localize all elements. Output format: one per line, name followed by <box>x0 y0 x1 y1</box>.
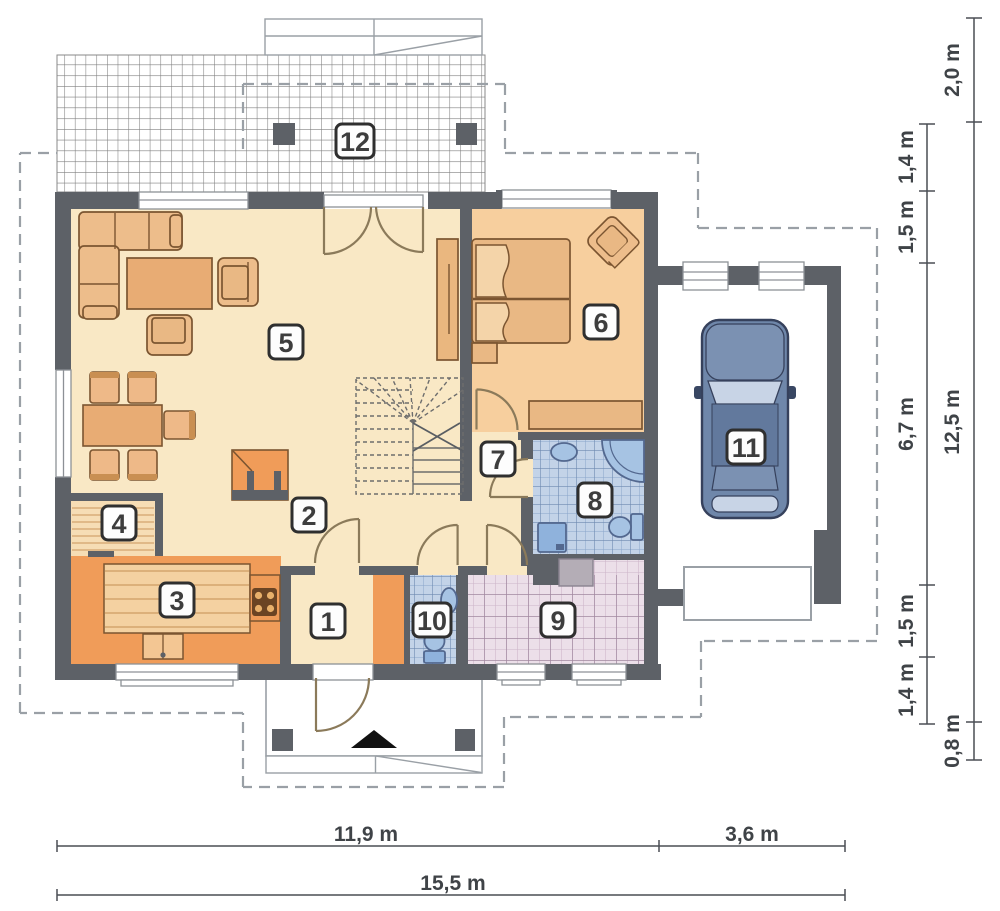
svg-text:10: 10 <box>417 606 447 636</box>
svg-text:12,5 m: 12,5 m <box>941 389 964 454</box>
svg-text:2,0 m: 2,0 m <box>941 43 964 97</box>
svg-text:0,8 m: 0,8 m <box>941 714 964 768</box>
svg-text:8: 8 <box>587 486 602 516</box>
svg-text:1: 1 <box>320 607 335 637</box>
svg-text:6: 6 <box>593 308 608 338</box>
svg-text:15,5 m: 15,5 m <box>420 872 485 895</box>
svg-text:4: 4 <box>111 509 126 539</box>
svg-text:3: 3 <box>169 586 184 616</box>
svg-text:12: 12 <box>340 127 370 157</box>
svg-text:11: 11 <box>732 433 761 463</box>
svg-text:9: 9 <box>550 606 565 636</box>
svg-text:2: 2 <box>301 501 316 531</box>
svg-text:11,9 m: 11,9 m <box>334 823 398 846</box>
svg-text:1,5 m: 1,5 m <box>895 594 918 648</box>
svg-text:1,4 m: 1,4 m <box>895 663 918 717</box>
svg-text:3,6 m: 3,6 m <box>725 823 779 846</box>
svg-text:5: 5 <box>278 328 293 358</box>
svg-text:1,5 m: 1,5 m <box>895 200 918 254</box>
svg-text:1,4 m: 1,4 m <box>895 130 918 184</box>
svg-text:6,7 m: 6,7 m <box>895 397 918 451</box>
svg-text:7: 7 <box>490 445 505 475</box>
